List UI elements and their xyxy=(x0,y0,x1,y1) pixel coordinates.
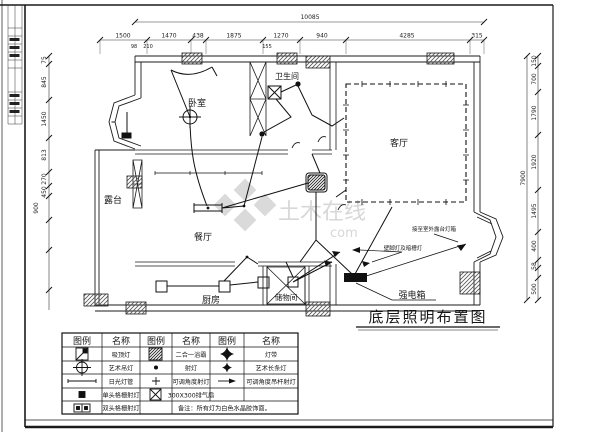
legend-note: 备注：所有灯为白色水晶胶饰面。 xyxy=(178,405,271,413)
ceiling-lamp-icon xyxy=(76,348,88,360)
bay-window-lamp-icon xyxy=(122,133,131,138)
dim-top-sub-3: 155 xyxy=(262,44,272,50)
power-box-label: 强电箱 xyxy=(398,289,425,301)
legend-name: 日光灯管 xyxy=(109,378,134,386)
label-dining: 餐厅 xyxy=(194,231,212,243)
legend-header-symbol-2: 图例 xyxy=(147,335,165,347)
dim-right-overall: 7900 xyxy=(520,170,527,185)
dim-top-3: 438 xyxy=(192,33,204,40)
legend-name: 二合一浴霸 xyxy=(176,351,207,359)
exhaust-fan-icon xyxy=(150,389,161,400)
dim-top-2: 1470 xyxy=(161,33,176,40)
dim-left-4: 813 xyxy=(41,149,48,161)
dimensions-left: 75 845 1450 813 270 450 900 xyxy=(33,53,52,310)
title-block-strip xyxy=(8,5,22,124)
label-storage: 储物间 xyxy=(275,292,298,302)
legend-name: 可调角度吊杆射灯 xyxy=(246,378,296,386)
legend-name: 300X300排气扇 xyxy=(168,392,214,400)
floor-plan-sheet: 土木在线 com 10085 1500 1470 438 1875 1270 9… xyxy=(0,0,610,432)
dim-left-6: 450 xyxy=(41,186,48,198)
title-block-text-marks xyxy=(10,38,20,113)
dim-right-6: 400 xyxy=(531,240,538,252)
bedroom-wire-arc xyxy=(171,67,212,74)
single-grille-spotlight-icon xyxy=(79,392,85,398)
legend-name: 单头格栅射灯 xyxy=(102,392,139,400)
dim-top-7: 4285 xyxy=(399,33,414,40)
spotlight-dot-icon xyxy=(154,366,157,369)
dim-left-7: 900 xyxy=(33,202,40,214)
dim-top-8: 315 xyxy=(471,33,483,40)
light-strip-star-icon xyxy=(220,347,234,361)
adjustable-rod-spotlight-arrow-icon xyxy=(218,379,236,384)
legend-name: 艺术长条灯 xyxy=(256,365,287,373)
legend-name: 可调角度射灯 xyxy=(172,378,209,386)
dim-top-1: 1500 xyxy=(115,33,130,40)
lighting-fixtures-and-wiring xyxy=(122,67,469,292)
drawing-title: 底层照明布置图 xyxy=(368,308,487,326)
bathroom-exhaust-fan-icon xyxy=(268,86,281,99)
watermark-suffix: com xyxy=(330,226,358,241)
adjustable-spotlight-icon xyxy=(152,377,160,385)
dim-top-5: 1270 xyxy=(273,33,288,40)
dim-left-5: 270 xyxy=(41,173,48,185)
drawing-title-group: 底层照明布置图 xyxy=(356,308,500,330)
bedroom-track xyxy=(155,171,262,175)
watermark-brand: 土木在线 xyxy=(278,200,366,225)
watermark-logo xyxy=(214,179,277,232)
dim-right-8: 500 xyxy=(531,283,538,295)
label-bathroom: 卫生间 xyxy=(275,71,299,81)
legend-header-name-2: 名称 xyxy=(182,335,200,347)
dim-top-sub-2: 210 xyxy=(143,44,153,50)
dim-top-6: 940 xyxy=(316,33,328,40)
dim-right-2: 700 xyxy=(531,73,538,85)
dim-top-overall: 10085 xyxy=(300,14,319,21)
legend-name: 艺术吊灯 xyxy=(109,365,134,373)
bathroom-spotlight-icon xyxy=(259,131,264,136)
dim-right-1: 150 xyxy=(531,55,538,67)
dimensions-right: 150 700 1790 1920 1495 400 58 500 7900 xyxy=(520,53,541,303)
dim-left-1: 75 xyxy=(41,56,48,64)
structural-columns xyxy=(84,53,480,316)
dim-left-2: 845 xyxy=(41,76,48,88)
dim-right-3: 1790 xyxy=(531,105,538,120)
legend-name: 吸顶灯 xyxy=(112,351,131,359)
label-bedroom: 卧室 xyxy=(188,97,206,109)
dimensions-top: 10085 1500 1470 438 1875 1270 940 4285 3… xyxy=(97,14,487,54)
room-labels: 卧室 卫生间 客厅 露台 餐厅 厨房 储物间 xyxy=(104,71,408,306)
annotation-leaders: 接至室外露台灯箱 壁脚灯及暗槽灯 xyxy=(352,225,456,267)
annotation-wall-lamp: 壁脚灯及暗槽灯 xyxy=(384,244,423,252)
label-living: 客厅 xyxy=(390,137,408,149)
dim-right-4: 1920 xyxy=(531,154,538,169)
bathroom-spotlight-icon xyxy=(295,81,300,86)
legend-header-name-3: 名称 xyxy=(262,335,280,347)
bath-heater-icon xyxy=(149,348,162,360)
dim-top-sub-1: 98 xyxy=(131,44,137,50)
double-grille-spotlight-icon xyxy=(74,404,90,412)
legend-header-symbol-1: 图例 xyxy=(73,335,91,347)
label-terrace: 露台 xyxy=(104,194,122,206)
label-kitchen: 厨房 xyxy=(202,294,220,306)
fluorescent-tube-icon xyxy=(68,379,96,383)
dim-right-7: 58 xyxy=(531,262,538,270)
annotation-terrace-lightbox: 接至室外露台灯箱 xyxy=(412,225,457,233)
power-box-icon xyxy=(344,273,367,282)
dim-top-4: 1875 xyxy=(226,33,241,40)
hall-lantern-lamp-icon xyxy=(306,173,327,192)
power-box-group: 强电箱 xyxy=(344,234,466,301)
dim-left-3: 1450 xyxy=(41,111,48,126)
legend-name: 双头格栅射灯 xyxy=(102,405,139,413)
dim-right-5: 1495 xyxy=(531,203,538,218)
legend-name: 灯带 xyxy=(265,351,277,359)
bathroom-vent xyxy=(306,56,330,68)
legend-header-name-1: 名称 xyxy=(112,335,130,347)
art-strip-lamp-icon xyxy=(222,363,232,373)
legend-name: 射灯 xyxy=(185,365,197,373)
legend-table: 图例 名称 图例 名称 图例 名称 xyxy=(62,333,298,414)
art-pendant-lamp-icon xyxy=(73,359,91,376)
legend-header-symbol-3: 图例 xyxy=(218,335,236,347)
kitchen-ceiling-lamp-icon xyxy=(156,277,269,292)
